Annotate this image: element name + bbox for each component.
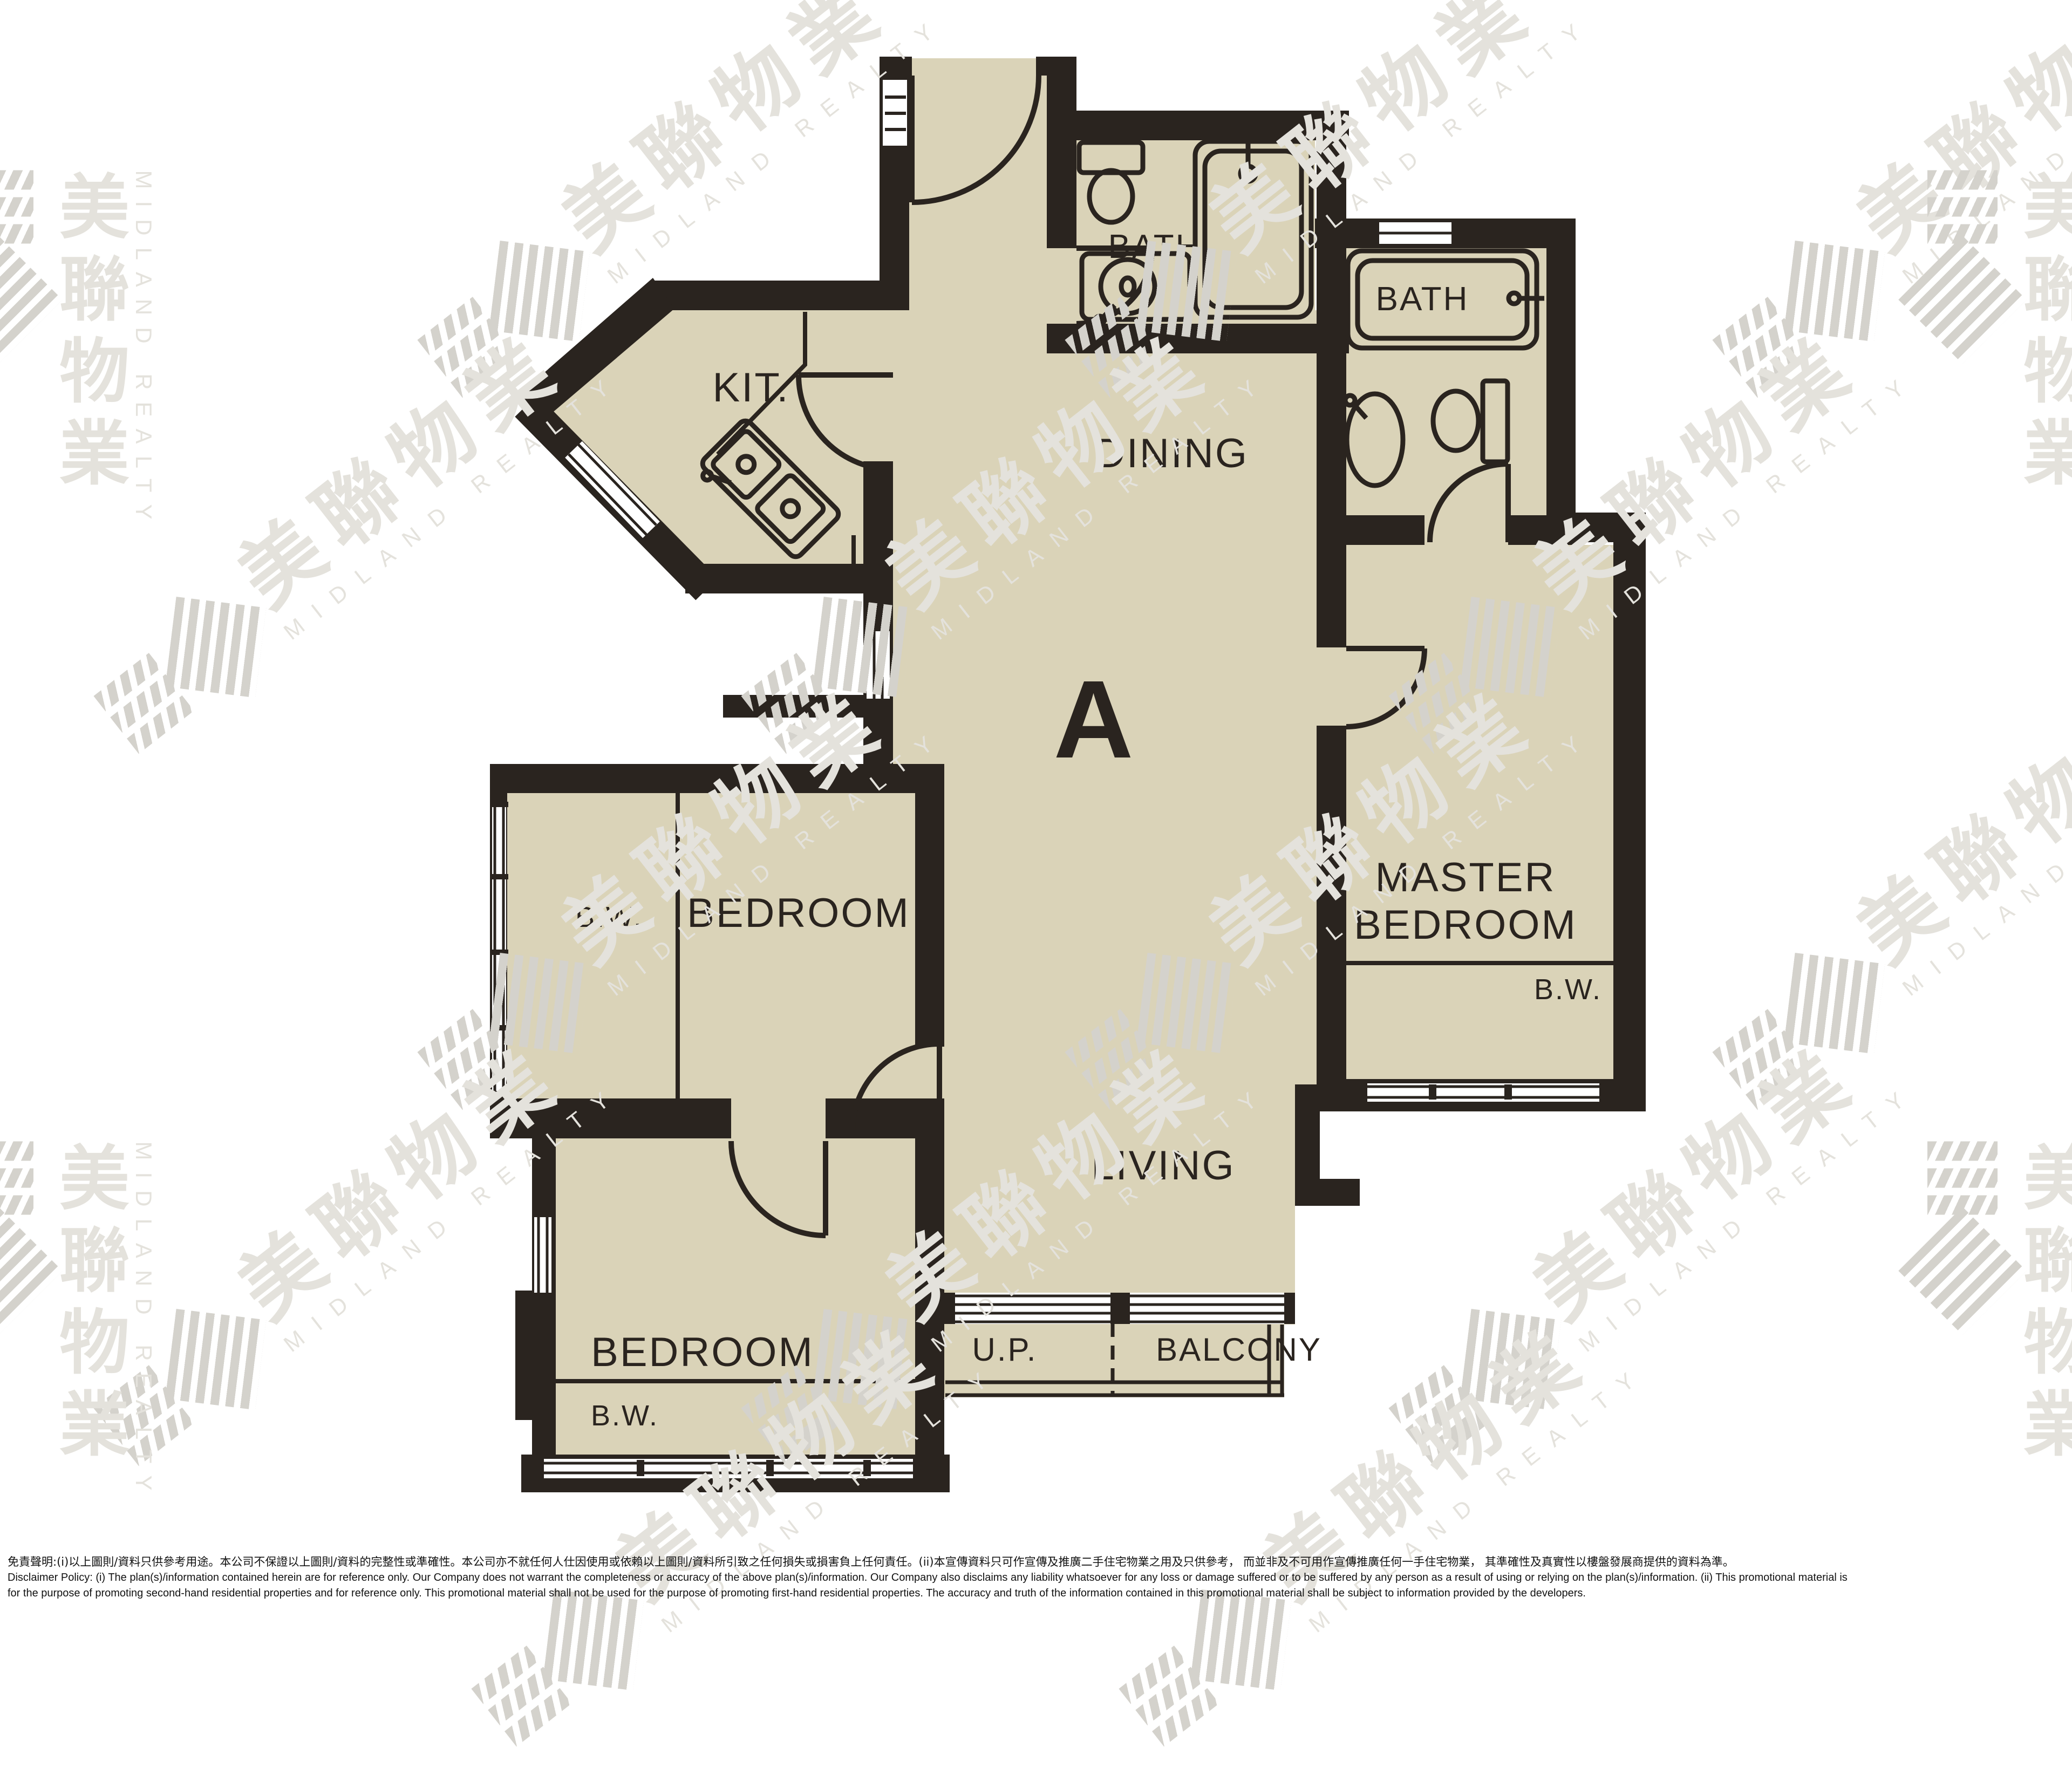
master-bedroom-label-2: BEDROOM [1354, 902, 1577, 948]
window-bedroom-left-bw [490, 802, 508, 1096]
bw-bedroom-bottom-label: B.W. [591, 1400, 659, 1432]
living-label: LIVING [1091, 1143, 1235, 1189]
disclaimer-english-2: for the purpose of promoting second-hand… [8, 1586, 2069, 1601]
window-foyer [883, 80, 907, 146]
disclaimer-english-1: Disclaimer Policy: (i) The plan(s)/infor… [8, 1570, 2069, 1586]
bath-top-label: BATH [1108, 228, 1202, 265]
window-master-bw [1360, 1082, 1607, 1102]
window-bedroom-bottom-left [534, 1217, 551, 1293]
bw-bedroom-left-label: B.W. [575, 901, 643, 933]
bath-master-label: BATH [1376, 281, 1469, 318]
bedroom-left-floor [507, 792, 915, 1098]
window-bath-master [1379, 222, 1451, 244]
dining-label: DINING [1095, 431, 1249, 476]
kitchen-label: KIT. [713, 365, 790, 411]
bw-master-label: B.W. [1534, 973, 1602, 1006]
balcony-label: BALCONY [1156, 1332, 1322, 1368]
utility-platform-label: U.P. [972, 1332, 1038, 1368]
unit-label: A [1053, 658, 1135, 781]
master-bedroom-label-1: MASTER [1375, 855, 1556, 900]
window-living-band [944, 1293, 1295, 1324]
window-bedroom-bottom-bw [544, 1459, 913, 1478]
bedroom-left-label: BEDROOM [687, 890, 910, 936]
disclaimer: 免責聲明:(i)以上圖則/資料只供參考用途。本公司不保證以上圖則/資料的完整性或… [8, 1554, 2069, 1601]
bedroom-bottom-label: BEDROOM [591, 1329, 814, 1375]
floor-plan-drawing: BATH BATH KIT. DINING A BEDROOM B.W. MAS… [0, 0, 2072, 1613]
disclaimer-chinese: 免責聲明:(i)以上圖則/資料只供參考用途。本公司不保證以上圖則/資料的完整性或… [8, 1554, 2069, 1570]
window-dining [867, 631, 890, 699]
floor-plan-page: { "labels": { "unit": "A", "dining": "DI… [0, 0, 2072, 1613]
